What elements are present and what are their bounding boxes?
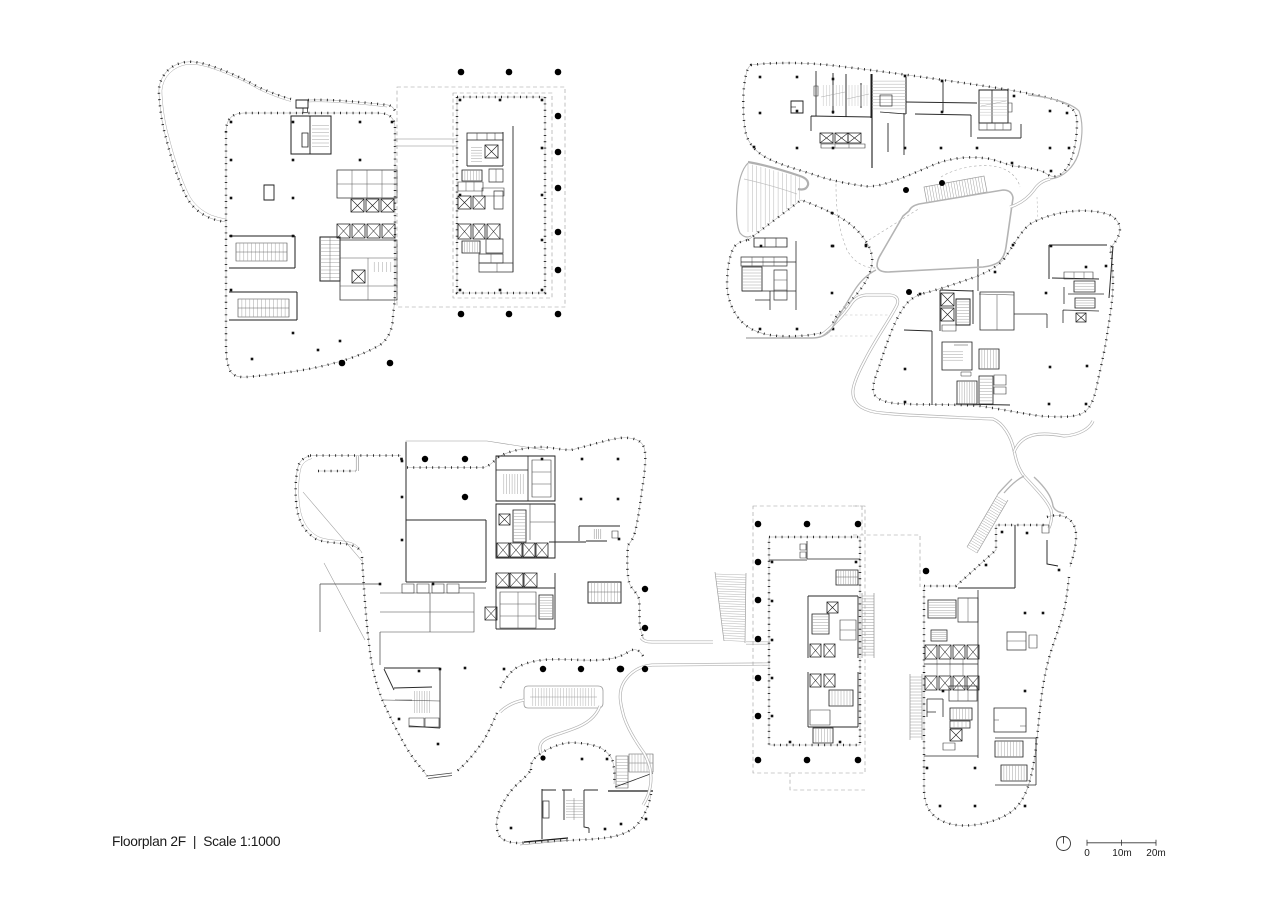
svg-text:10m: 10m [1112,848,1131,859]
svg-text:20m: 20m [1146,848,1165,859]
svg-text:Floorplan 2F | Scale 1:1000: Floorplan 2F | Scale 1:1000 [112,834,281,849]
svg-text:0: 0 [1084,848,1090,859]
